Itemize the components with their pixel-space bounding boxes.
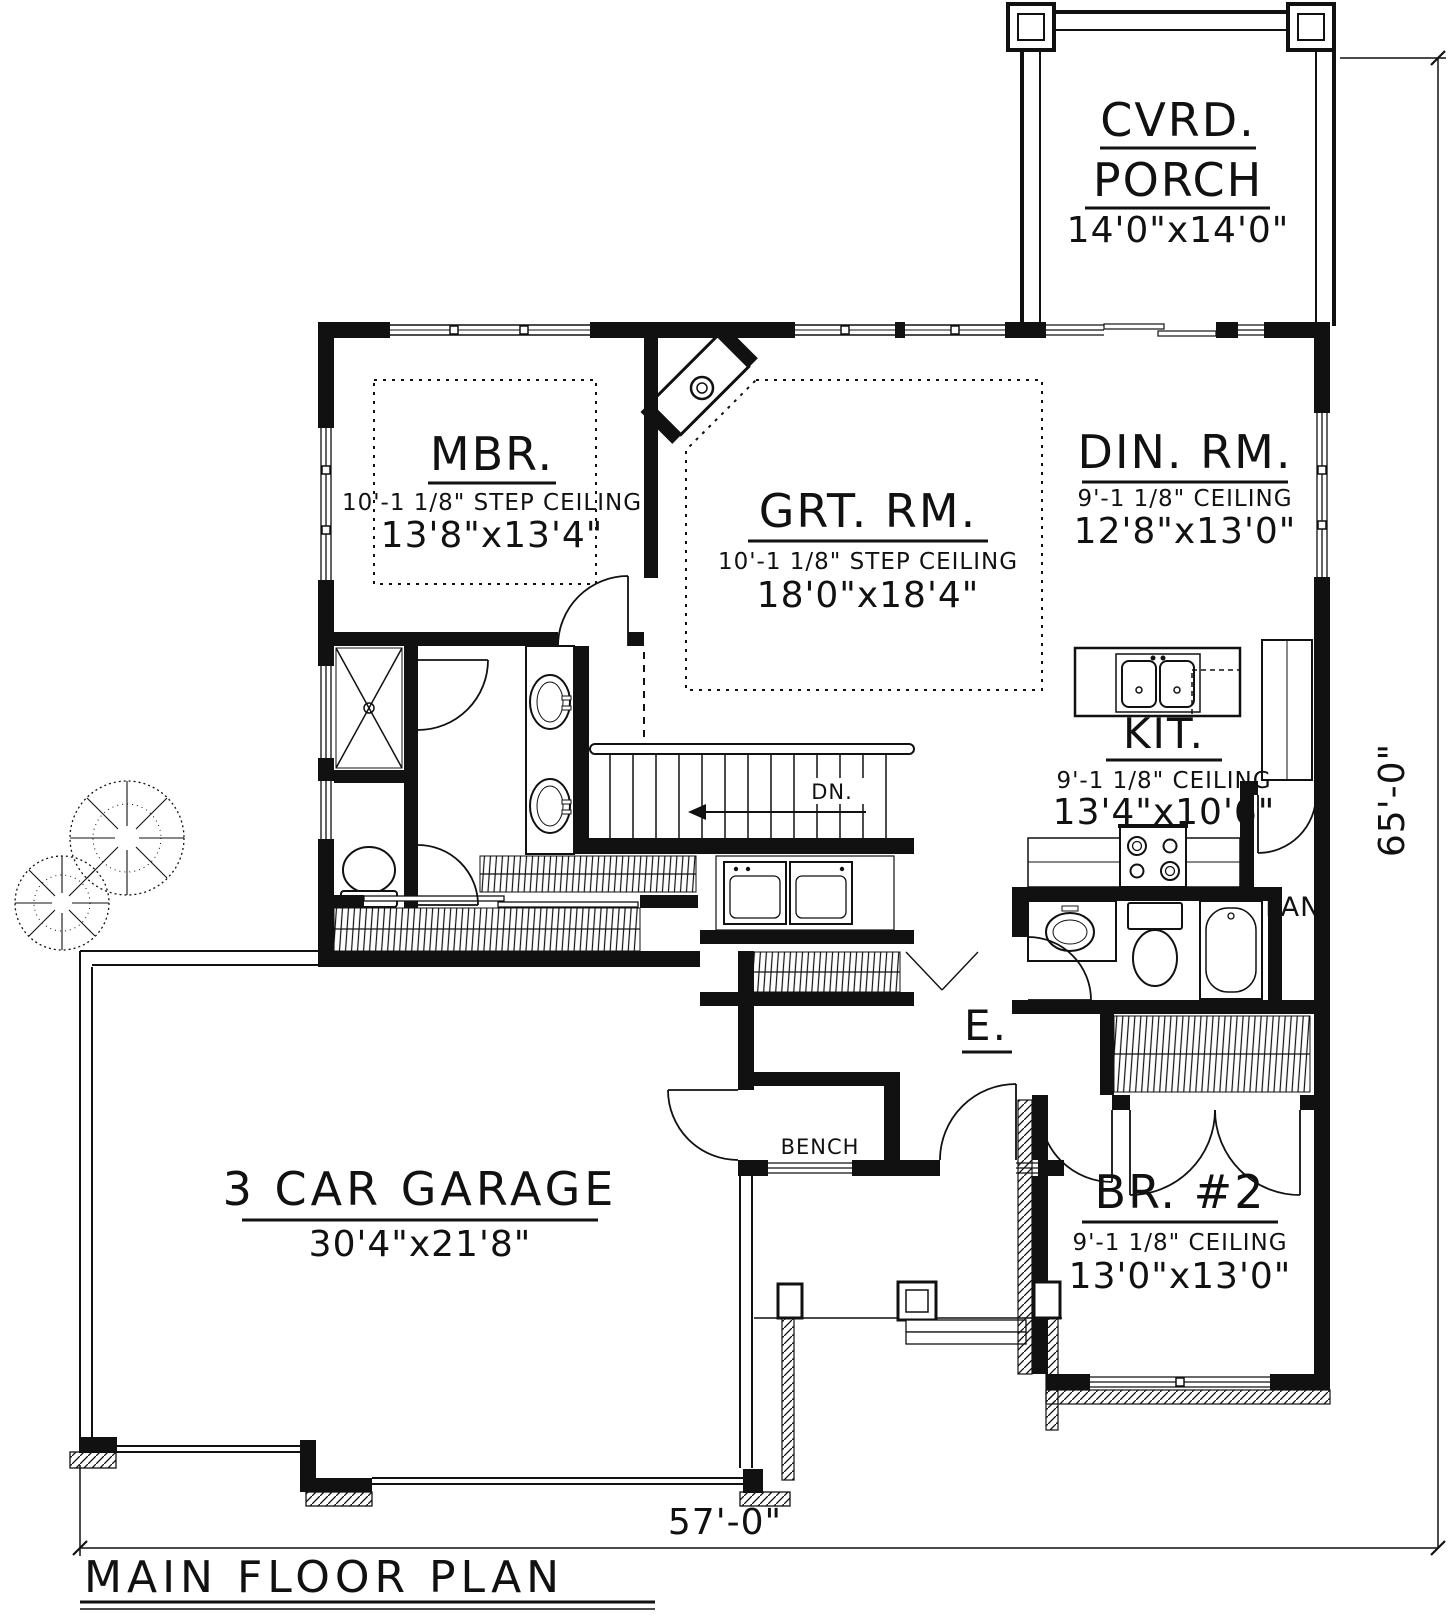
porch-post	[1008, 4, 1054, 50]
window-porch-2	[1238, 322, 1264, 338]
porch-post	[778, 1284, 802, 1318]
porch-label-line1: CVRD.	[1100, 93, 1256, 147]
garage-jamb-hatch	[306, 1492, 372, 1506]
double-vanity	[526, 646, 574, 854]
br2-label: BR. #2	[1095, 1165, 1266, 1219]
dim-right-text: 65'-0"	[1372, 743, 1413, 857]
mbr-ceiling: 10'-1 1/8" STEP CEILING	[342, 490, 642, 516]
garage-label: 3 CAR GARAGE	[223, 1162, 618, 1216]
din-label: DIN. RM.	[1078, 425, 1293, 479]
wall-left	[318, 322, 334, 955]
walk-edge-hatch	[1046, 1318, 1058, 1430]
porch-sliding-door	[1104, 322, 1216, 338]
window-mbr-left	[318, 428, 334, 580]
window-bath-left-1	[318, 666, 334, 758]
stairs-dn-label: DN.	[811, 780, 853, 804]
wall-house-garage	[318, 951, 700, 967]
garage-size: 30'4"x21'8"	[309, 1224, 532, 1265]
front-door-opening	[940, 1160, 1016, 1176]
bench-label: BENCH	[781, 1135, 860, 1159]
stove	[1118, 826, 1188, 887]
window-porch-1	[1046, 322, 1104, 338]
kitchen-island	[1075, 648, 1240, 716]
pantry-label: PAN.	[1265, 892, 1331, 923]
walk-edge-hatch	[782, 1318, 794, 1480]
porch-post	[1034, 1282, 1060, 1318]
floor-plan-page: CVRD. PORCH 14'0"x14'0" MBR. 10'-1 1/8" …	[0, 0, 1448, 1619]
grt-label: GRT. RM.	[759, 484, 977, 538]
porch-step	[906, 1332, 1026, 1344]
din-size: 12'8"x13'0"	[1074, 511, 1297, 552]
window-grt-top-2	[905, 322, 1005, 338]
window-mbr-top	[390, 322, 590, 338]
mbr-size: 13'8"x13'4"	[381, 515, 604, 556]
kit-label: KIT.	[1123, 709, 1205, 758]
entry-label: E.	[964, 1001, 1008, 1050]
mbr-label: MBR.	[430, 427, 554, 481]
garage-jamb-hatch	[70, 1452, 116, 1468]
window-bath-left-2	[318, 781, 334, 839]
window-grt-top-1	[795, 322, 895, 338]
bath2-toilet	[1128, 903, 1182, 986]
din-ceiling: 9'-1 1/8" CEILING	[1077, 486, 1292, 512]
grt-ceiling: 10'-1 1/8" STEP CEILING	[718, 549, 1018, 575]
window-dining-right	[1314, 413, 1330, 577]
kit-ceiling: 9'-1 1/8" CEILING	[1056, 768, 1271, 794]
washer	[724, 862, 786, 924]
grt-size: 18'0"x18'4"	[757, 575, 980, 616]
dim-bottom-text: 57'-0"	[668, 1502, 782, 1543]
porch-label-line2: PORCH	[1093, 153, 1263, 207]
kitchen-sink	[1116, 654, 1200, 712]
kit-size: 13'4"x10'6"	[1053, 792, 1276, 833]
window-bench	[768, 1160, 852, 1176]
bath2-vanity	[1028, 901, 1116, 961]
porch-post	[898, 1282, 936, 1320]
laundry-appliances	[716, 856, 894, 930]
porch-size: 14'0"x14'0"	[1067, 210, 1290, 251]
refrigerator	[1262, 640, 1312, 780]
plan-title: MAIN FLOOR PLAN	[84, 1552, 564, 1603]
dryer	[790, 862, 852, 924]
porch-step	[906, 1320, 1026, 1332]
br2-size: 13'0"x13'0"	[1069, 1256, 1292, 1297]
window-br2-bottom	[1090, 1374, 1270, 1390]
bathtub	[1200, 901, 1262, 999]
floor-plan-drawing: CVRD. PORCH 14'0"x14'0" MBR. 10'-1 1/8" …	[0, 0, 1448, 1619]
br2-ceiling: 9'-1 1/8" CEILING	[1072, 1230, 1287, 1256]
porch-post	[1288, 4, 1334, 50]
